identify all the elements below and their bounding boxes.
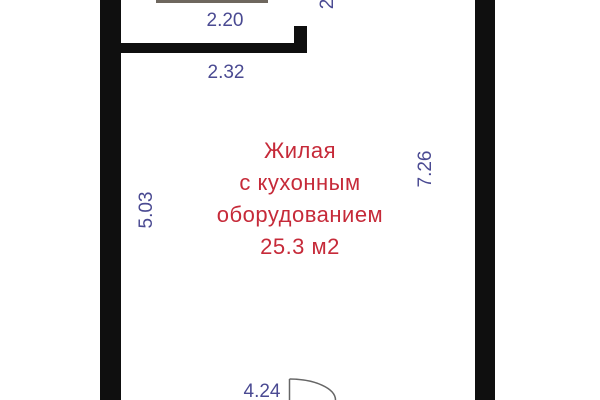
room-label: Жилая с кухонным оборудованием 25.3 м2 [150, 135, 450, 263]
partition-wall-stub [294, 26, 307, 53]
room-name-line-1: Жилая [150, 135, 450, 167]
door-swing-arc [290, 379, 336, 400]
left-wall [100, 0, 121, 400]
dimension-top: 2.20 [185, 11, 265, 31]
floor-plan-canvas: 2.20 2.32 5.03 7.26 4.24 2 Жилая с кухон… [0, 0, 600, 400]
top-edge-wall-fragment [156, 0, 268, 3]
partition-wall-horizontal [121, 43, 307, 53]
room-area: 25.3 м2 [150, 231, 450, 263]
dimension-top-secondary: 2.32 [186, 63, 266, 83]
dimension-top-right-partial: 2 [318, 0, 338, 24]
door-swing [287, 379, 339, 400]
right-wall [475, 0, 495, 400]
room-name-line-2: с кухонным [150, 167, 450, 199]
room-name-line-3: оборудованием [150, 199, 450, 231]
